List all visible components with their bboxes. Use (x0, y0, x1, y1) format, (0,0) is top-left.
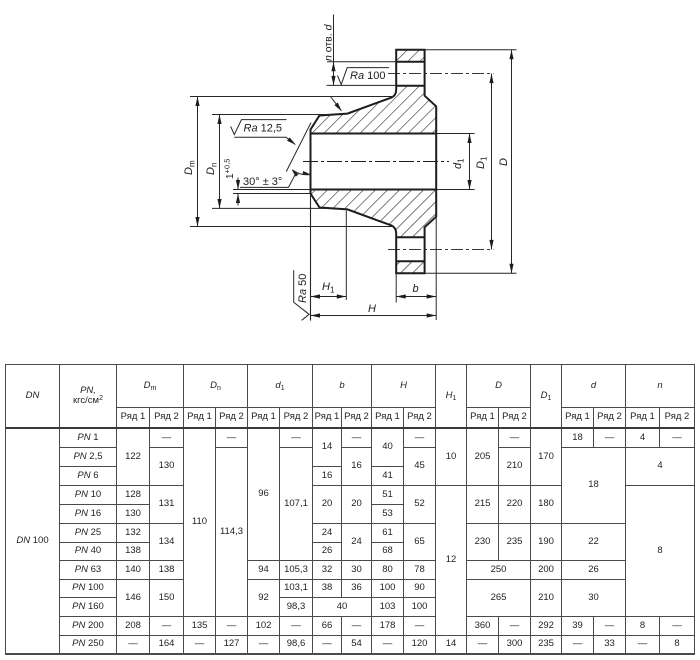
svg-text:H1: H1 (322, 281, 335, 295)
svg-text:Ra 12,5: Ra 12,5 (244, 123, 283, 135)
svg-text:D1: D1 (475, 156, 489, 169)
svg-text:n отв. d: n отв. d (323, 23, 335, 61)
svg-text:Ra 50: Ra 50 (297, 274, 309, 303)
svg-text:H: H (368, 303, 376, 315)
svg-text:Dm: Dm (183, 160, 197, 175)
svg-text:1+0,5: 1+0,5 (223, 159, 237, 179)
svg-text:Dn: Dn (205, 163, 219, 175)
svg-text:30° ± 3°: 30° ± 3° (243, 176, 282, 188)
svg-text:d1: d1 (452, 158, 466, 169)
svg-text:D: D (498, 158, 510, 166)
svg-text:b: b (413, 283, 419, 295)
svg-text:Ra 100: Ra 100 (350, 70, 385, 82)
